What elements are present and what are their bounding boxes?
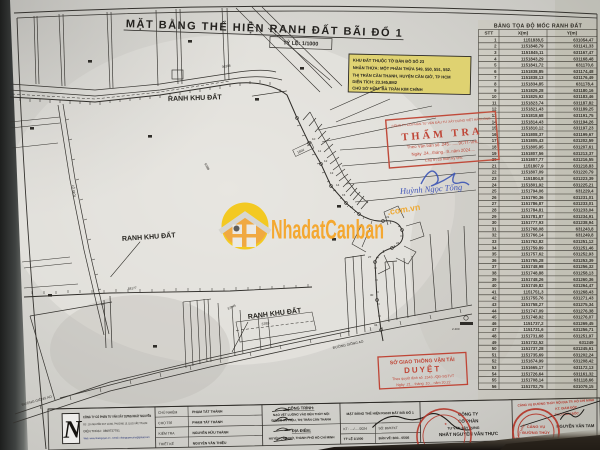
svg-text:SỐ: B6/KTKT: SỐ: B6/KTKT (378, 425, 397, 430)
svg-text:NGUYỄN VĂN THIỆU: NGUYỄN VĂN THIỆU (193, 440, 227, 446)
svg-text:★: ★ (444, 422, 448, 426)
svg-text:ĐIỆN THOẠI : 0899737791: ĐIỆN THOẠI : 0899737791 (83, 428, 120, 434)
svg-text:34: 34 (374, 323, 378, 327)
svg-text:PHẠM TẤT THÀNH: PHẠM TẤT THÀNH (192, 419, 223, 425)
svg-text:BẢN VẼ: B03 - 05/05: BẢN VẼ: B03 - 05/05 (379, 435, 410, 441)
svg-text:16: 16 (350, 205, 354, 209)
svg-text:TỶ LỆ 1/1000: TỶ LỆ 1/1000 (344, 436, 364, 441)
svg-text:30: 30 (370, 293, 374, 297)
svg-text:NhadatCanban: NhadatCanban (271, 215, 384, 245)
svg-text:12: 12 (324, 159, 328, 163)
svg-text:N: N (62, 416, 83, 443)
svg-text:27: 27 (368, 255, 372, 259)
svg-text:THIẾT KẾ: THIẾT KẾ (159, 441, 175, 446)
svg-text:KIỂM TRA: KIỂM TRA (158, 430, 175, 435)
svg-text:CẢNG VỤ: CẢNG VỤ (527, 424, 546, 429)
svg-text:24: 24 (396, 241, 400, 245)
svg-text:DIỆN TÍCH: 23.345,8M2: DIỆN TÍCH: 23.345,8M2 (352, 79, 397, 85)
svg-text:KT : ..../...../2024: KT : ..../...../2024 (343, 427, 367, 431)
svg-text:CHỦ TRÌ: CHỦ TRÌ (158, 420, 172, 425)
svg-text:NGUYỄN HỮU THÀNH: NGUYỄN HỮU THÀNH (192, 429, 229, 435)
svg-text:14: 14 (336, 183, 340, 187)
svg-text:2.400: 2.400 (452, 327, 460, 331)
svg-text:11: 11 (318, 149, 321, 153)
svg-text:10: 10 (312, 137, 316, 141)
svg-text:PHẠM TẤT THÀNH: PHẠM TẤT THÀNH (192, 408, 223, 414)
svg-text:NGUYỄN VĂN TAM: NGUYỄN VĂN TAM (556, 423, 594, 429)
svg-text:CHỦ NHIỆM: CHỦ NHIỆM (158, 409, 177, 414)
svg-text:13: 13 (330, 171, 334, 175)
svg-text:ĐỊA ĐIỂM:: ĐỊA ĐIỂM: (292, 428, 311, 433)
svg-text:ĐƯỜNG THỦY: ĐƯỜNG THỦY (522, 430, 550, 435)
svg-text:CÔNG TRÌNH:: CÔNG TRÌNH: (288, 405, 315, 411)
svg-text:15: 15 (342, 193, 346, 197)
